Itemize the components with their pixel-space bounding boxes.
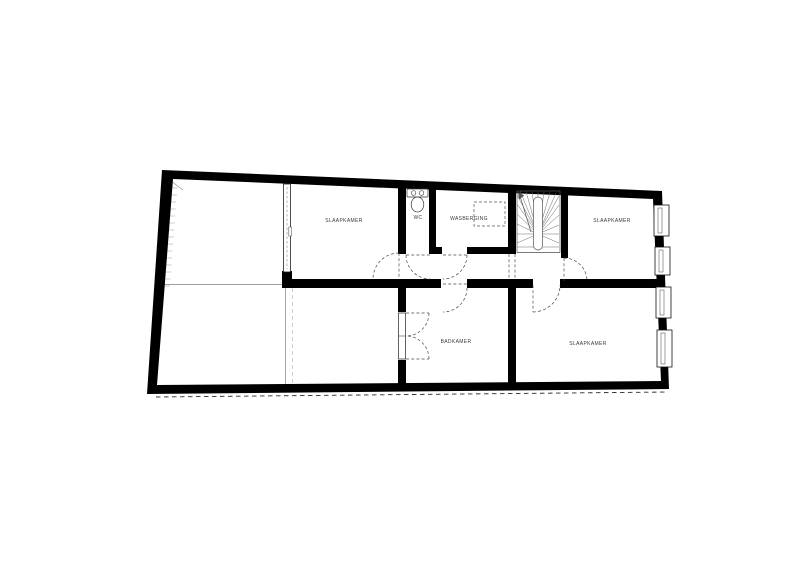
window — [657, 330, 672, 367]
room-label-slaapkamer-bottom-right: SLAAPKAMER — [569, 341, 606, 347]
window — [656, 287, 671, 318]
wall-stair-right — [561, 192, 568, 258]
glazed-partition — [284, 184, 292, 272]
floor-plan-canvas: SLAAPKAMER WC WASBERGING SLAAPKAMER BADK… — [0, 0, 800, 566]
window — [655, 247, 670, 275]
room-label-wasberging: WASBERGING — [450, 216, 488, 222]
wall-badkamer-left-lower — [398, 360, 406, 385]
room-label-slaapkamer-top-left: SLAAPKAMER — [325, 218, 362, 224]
wall-stair-left — [508, 190, 516, 247]
wall-badkamer-right — [508, 288, 516, 385]
window — [654, 205, 669, 236]
room-label-badkamer: BADKAMER — [441, 339, 472, 345]
wall-wc-right — [429, 186, 436, 247]
room-label-wc: WC — [413, 215, 422, 221]
wall-room1-bottom — [282, 279, 398, 288]
wall-stub-wc — [429, 247, 442, 254]
french-door-frame — [399, 313, 406, 359]
floor-plan-page: SLAAPKAMER WC WASBERGING SLAAPKAMER BADK… — [0, 0, 800, 566]
partition-handle — [289, 227, 292, 236]
stair-newel — [534, 197, 543, 250]
wall-corridor-bottom-b — [467, 279, 533, 288]
wall-wc-left — [398, 185, 406, 254]
room-label-slaapkamer-top-right: SLAAPKAMER — [593, 218, 630, 224]
wall-corridor-bottom-a — [398, 279, 441, 288]
wall-corridor-top — [467, 247, 516, 254]
wall-badkamer-left-upper — [398, 288, 406, 312]
wall-corridor-bottom-c — [560, 279, 657, 288]
